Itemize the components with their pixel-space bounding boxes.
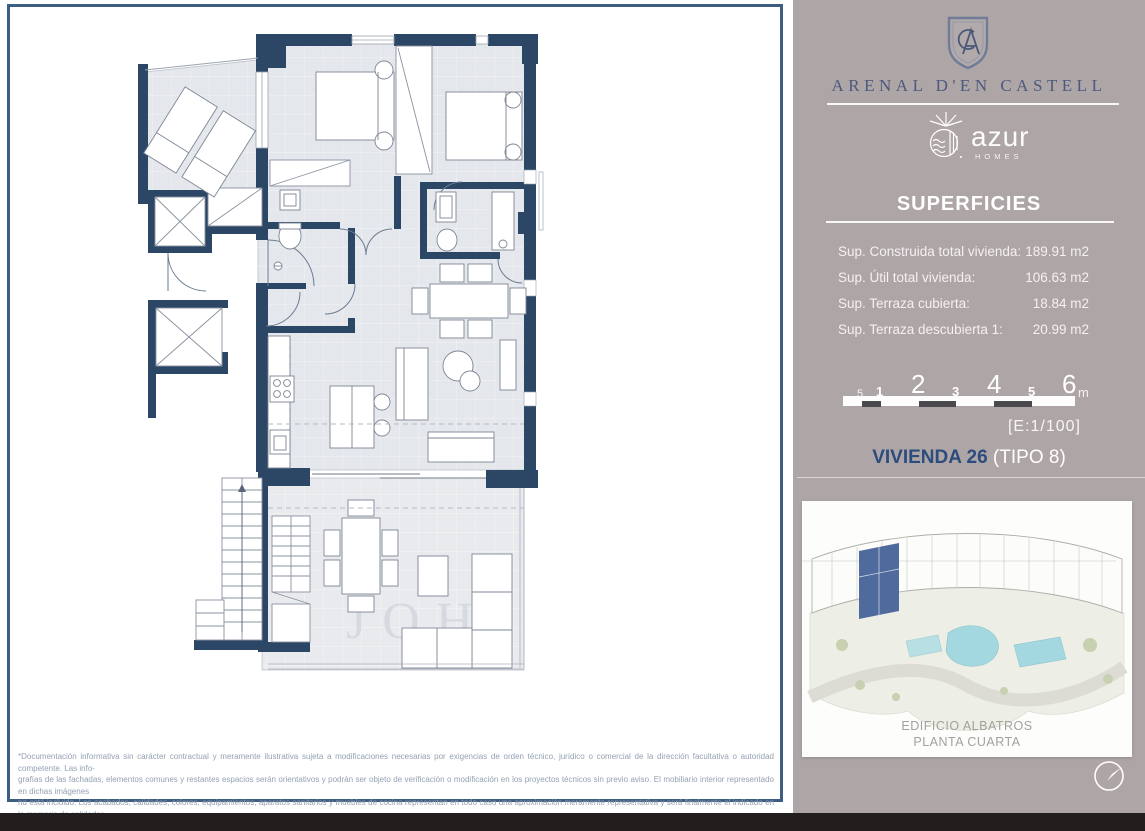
- surface-row: Sup. Construida total vivienda: 189.91 m…: [838, 244, 1089, 262]
- site-plan-caption: EDIFICIO ALBATROS PLANTA CUARTA: [802, 718, 1132, 750]
- floor-plan: JOH: [10, 8, 780, 748]
- compass-icon: [1092, 759, 1126, 793]
- divider: [826, 221, 1114, 223]
- surface-row: Sup. Terraza cubierta: 18.84 m2: [838, 296, 1089, 314]
- legal-line: grafías de las fachadas, elementos comun…: [18, 774, 774, 797]
- site-plan-panel: EDIFICIO ALBATROS PLANTA CUARTA: [802, 501, 1132, 757]
- divider: [827, 103, 1119, 105]
- azur-wordmark: azur: [971, 121, 1029, 153]
- unit-title: VIVIENDA 26 (TIPO 8): [793, 447, 1145, 469]
- scale-bar: 5 1 2 3 4 5 6 m: [843, 372, 1083, 412]
- azur-homes-icon: [923, 110, 969, 162]
- shield-logo-icon: [944, 14, 992, 72]
- brand-name: ARENAL D'EN CASTELL: [793, 76, 1145, 96]
- legal-line: *Documentación informativa sin carácter …: [18, 751, 774, 774]
- site-plan: [802, 501, 1132, 731]
- bottom-bar: [0, 813, 1145, 831]
- superficies-title: SUPERFICIES: [793, 193, 1145, 216]
- surface-row: Sup. Útil total vivienda: 106.63 m2: [838, 270, 1089, 288]
- surface-row: Sup. Terraza descubierta 1: 20.99 m2: [838, 322, 1089, 340]
- azur-homes-label: HOMES: [975, 152, 1023, 161]
- scale-ratio: [E:1/100]: [1008, 418, 1081, 436]
- brochure-page: JOH: [0, 0, 1145, 831]
- divider: [797, 477, 1145, 478]
- info-sidebar: ARENAL D'EN CASTELL azur HOME: [793, 0, 1145, 813]
